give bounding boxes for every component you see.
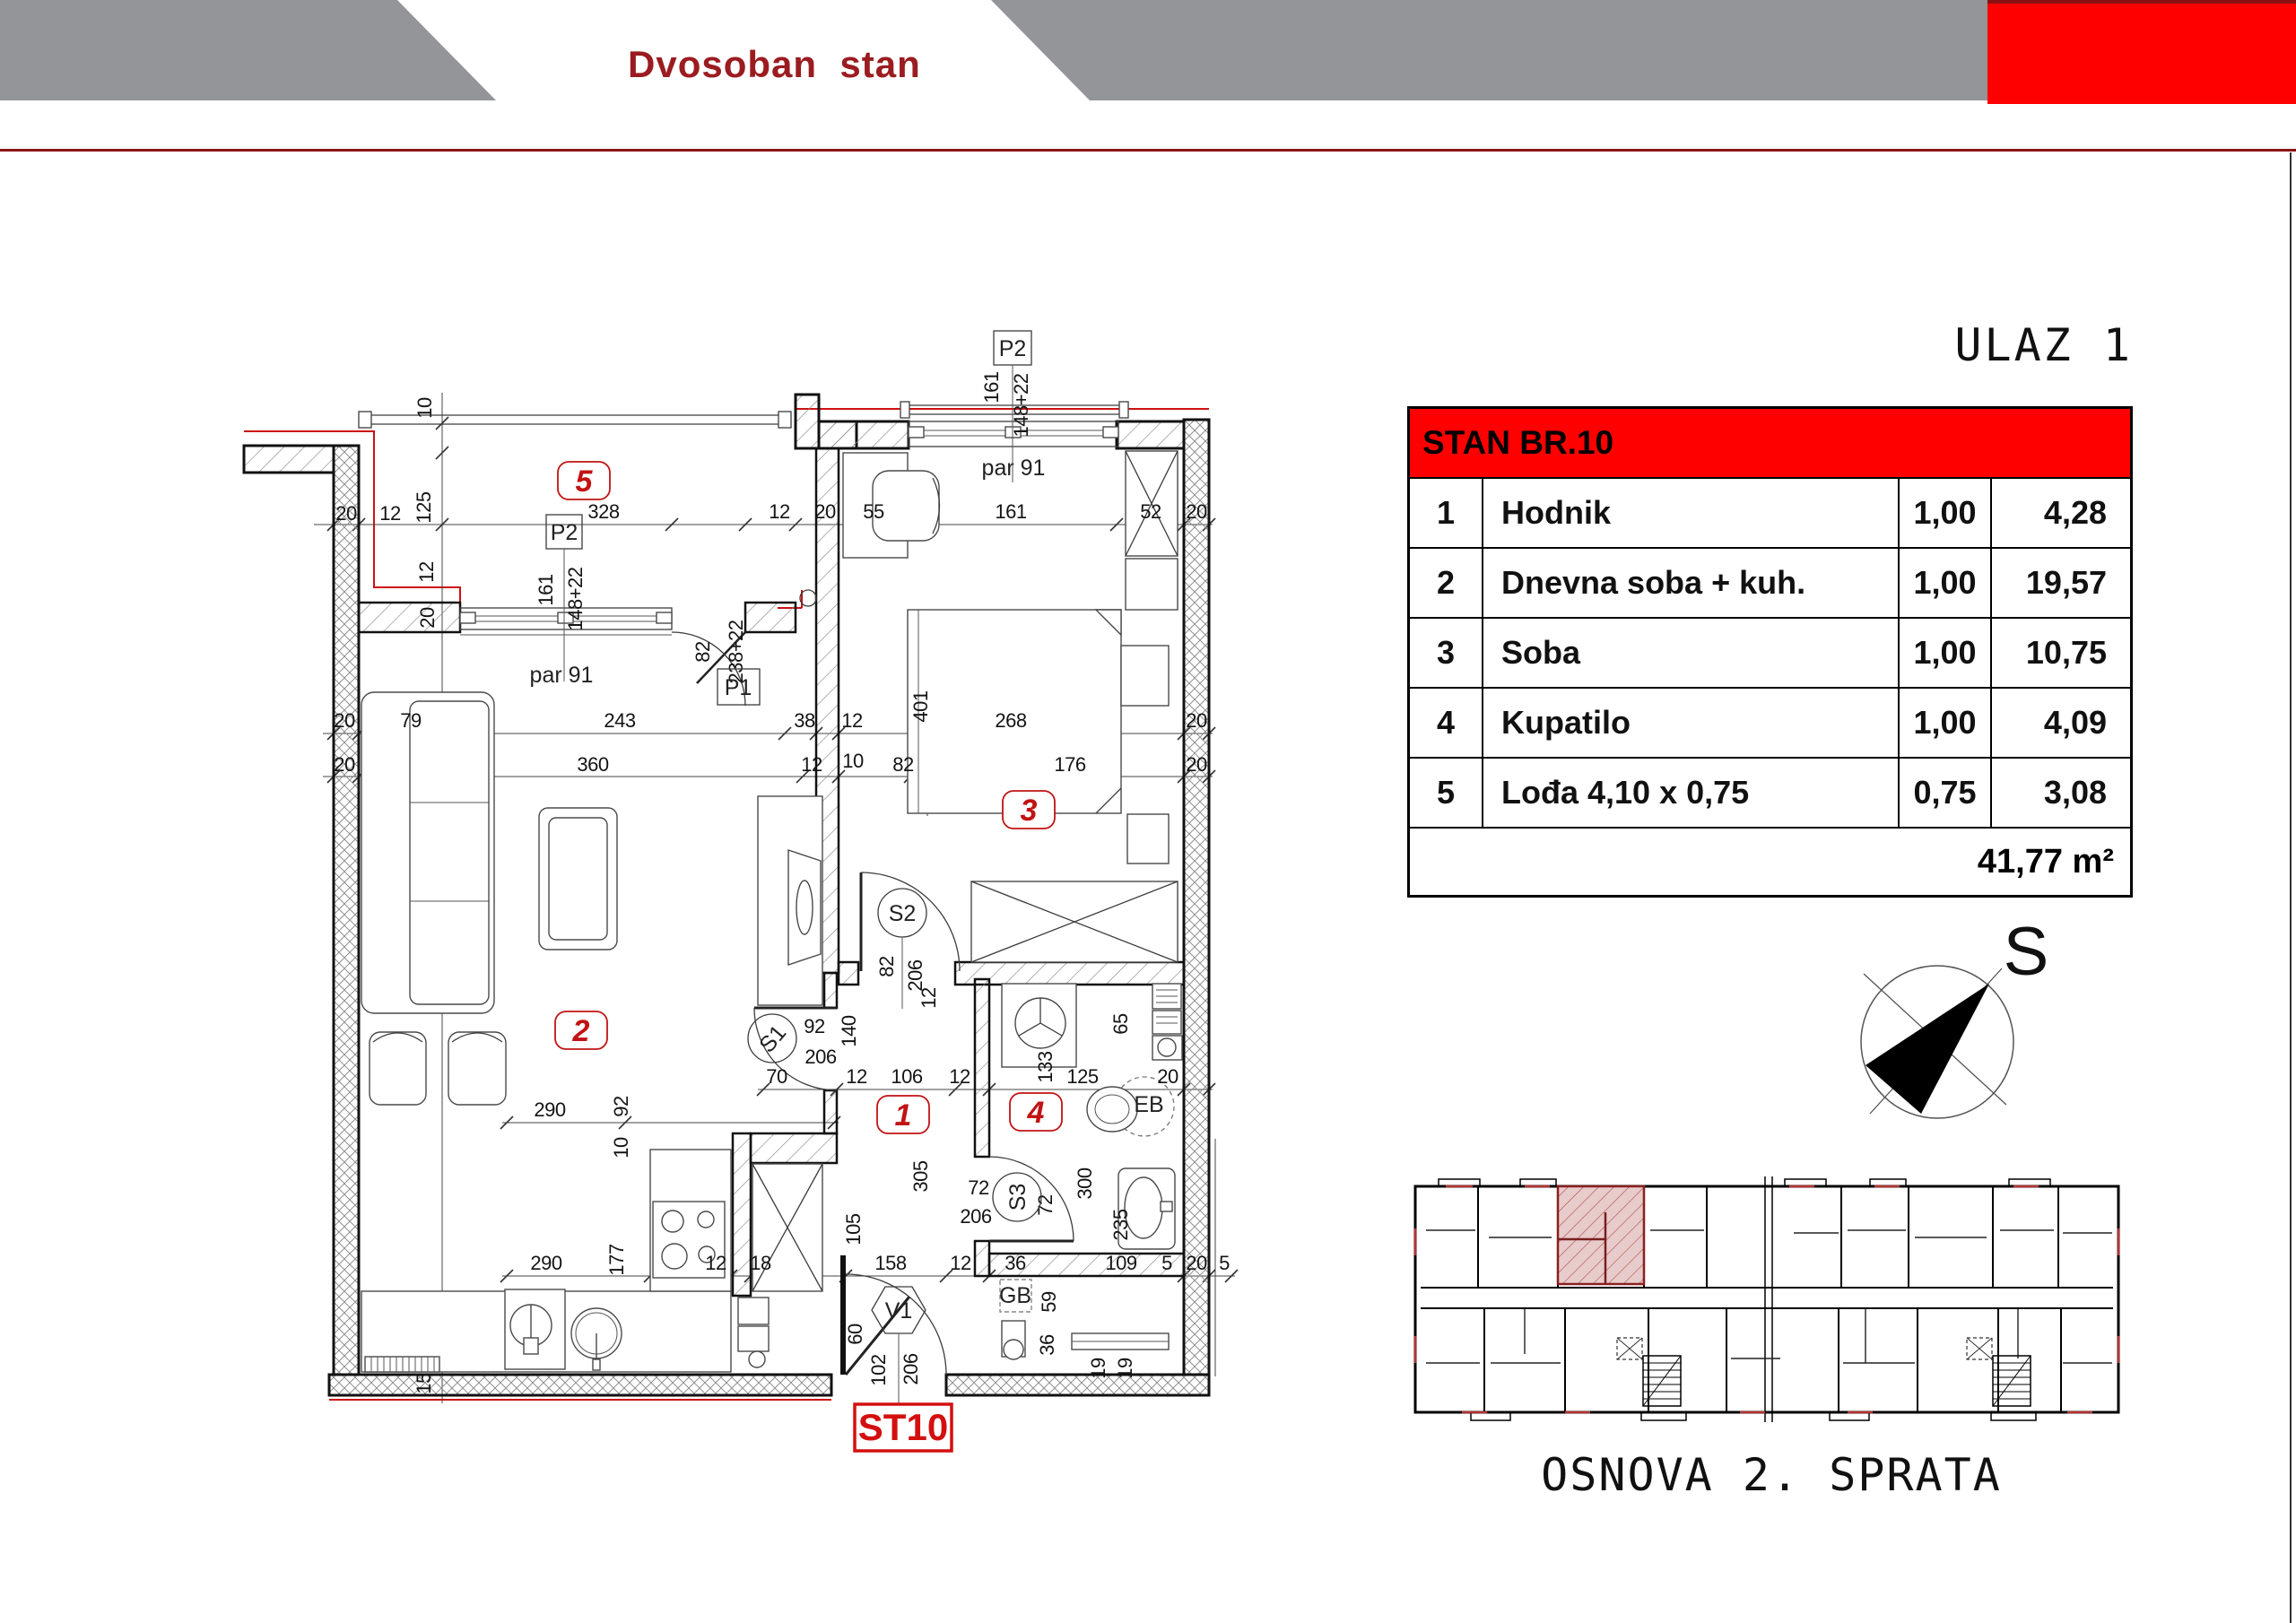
dim-text: 12: [379, 502, 401, 525]
dim-text: 125: [1066, 1065, 1098, 1088]
dim-text: 238+22: [725, 620, 747, 683]
dim-text: 20: [335, 502, 357, 525]
dresser: [971, 881, 1178, 962]
entry-door-jamb: [840, 1255, 846, 1375]
overview-window-marks: [1415, 1186, 2118, 1412]
dim-text: 206: [904, 959, 926, 991]
compass-north-label: S: [2004, 914, 2049, 990]
dim-text: 148+22: [564, 567, 587, 630]
eb-label: EB: [1134, 1092, 1163, 1117]
dim-text: 268: [995, 709, 1026, 732]
dim-text: 109: [1105, 1252, 1136, 1274]
dim-text: 290: [534, 1098, 565, 1121]
radiator: [1072, 1333, 1169, 1350]
dim-text: 148+22: [1010, 373, 1032, 437]
dim-text: 161: [980, 371, 1003, 403]
wardrobe: [1126, 451, 1178, 610]
unit-tag-st10: ST10: [855, 1404, 952, 1451]
tv-stand: [758, 796, 822, 1005]
dim-text: 12: [846, 1065, 867, 1088]
dim-text: 19: [1087, 1358, 1109, 1379]
dim-text: 360: [577, 753, 608, 776]
dim-text: 206: [960, 1205, 991, 1228]
svg-text:P2: P2: [999, 336, 1027, 361]
dim-text: 20: [1186, 709, 1207, 732]
apartment-plan: 10 20 12 125 12 20 328 12 20 55 161 52 2…: [244, 331, 1238, 1451]
dim-text: 158: [874, 1252, 906, 1274]
dim-text: 12: [801, 753, 822, 776]
nightstand: [1121, 646, 1169, 706]
dim-text: 12: [841, 709, 863, 732]
dining-table: [539, 808, 617, 950]
dim-text: 20: [1186, 1252, 1207, 1274]
toilet: [1087, 1087, 1137, 1132]
dim-text: 401: [909, 690, 932, 722]
svg-text:4: 4: [1027, 1096, 1045, 1130]
room-label-1: 1: [877, 1096, 929, 1133]
svg-text:S1: S1: [754, 1020, 791, 1057]
dim-text: 72: [968, 1176, 989, 1199]
dim-text: 12: [918, 987, 940, 1009]
room-label-2: 2: [555, 1011, 607, 1049]
compass-needle: [1865, 984, 1989, 1114]
svg-text:1: 1: [895, 1098, 912, 1133]
dim-text: 12: [769, 500, 790, 523]
dim-text: 235: [1109, 1209, 1132, 1240]
svg-text:2: 2: [572, 1014, 590, 1048]
dim-text: 20: [814, 500, 836, 523]
svg-text:5: 5: [576, 464, 594, 499]
dim-text: 125: [413, 491, 435, 523]
parapet-label: par 91: [982, 456, 1046, 481]
sofa: [361, 692, 494, 1013]
dim-text: 59: [1038, 1291, 1060, 1313]
dim-text: 133: [1034, 1051, 1057, 1082]
dim-text: 161: [995, 500, 1026, 523]
dim-text: 92: [804, 1015, 825, 1037]
svg-text:P2: P2: [551, 520, 578, 545]
svg-text:3: 3: [1021, 794, 1038, 828]
dim-text: 92: [610, 1096, 632, 1117]
svg-text:P1: P1: [725, 675, 752, 700]
vent-shaft: [1152, 984, 1181, 1034]
dim-text: 82: [892, 753, 914, 776]
dim-text: 82: [691, 641, 714, 663]
dim-text: 20: [334, 753, 355, 776]
dim-text: 20: [1157, 1065, 1178, 1088]
dim-text: 10: [413, 397, 436, 419]
dim-text: 55: [863, 500, 884, 523]
dim-text: 5: [1161, 1252, 1172, 1274]
dim-text: 20: [334, 709, 355, 732]
svg-text:V1: V1: [885, 1298, 913, 1324]
dim-text: 161: [535, 574, 557, 605]
dim-text: 328: [587, 500, 619, 523]
floor-plan-drawing: 10 20 12 125 12 20 328 12 20 55 161 52 2…: [0, 0, 2296, 1623]
room-label-3: 3: [1003, 791, 1055, 829]
dim-text: 12: [950, 1252, 971, 1274]
dim-text: 18: [750, 1252, 771, 1274]
dim-text: 65: [1109, 1013, 1132, 1035]
dim-text: 36: [1004, 1252, 1026, 1274]
dim-text: 12: [949, 1065, 970, 1088]
dim-text: 177: [605, 1244, 628, 1275]
dim-text: 52: [1140, 500, 1161, 523]
parapet-label: par 91: [530, 663, 594, 688]
stool: [448, 1032, 506, 1105]
nightstand: [1127, 814, 1169, 864]
dim-text: 300: [1074, 1167, 1096, 1199]
bath-door-s3: [989, 1157, 1074, 1241]
dim-text: 12: [415, 561, 438, 583]
dim-text: 72: [1034, 1194, 1057, 1216]
compass: S: [1861, 914, 2048, 1118]
dim-text: 206: [900, 1353, 922, 1384]
svg-text:S3: S3: [1005, 1184, 1031, 1211]
highlighted-unit: [1558, 1186, 1644, 1284]
room-label-4: 4: [1010, 1093, 1062, 1131]
dim-text: 140: [838, 1015, 860, 1046]
dim-text: 206: [804, 1046, 836, 1068]
dim-text: 36: [1036, 1334, 1058, 1356]
dim-text: 19: [1114, 1358, 1136, 1379]
dim-text: 70: [766, 1065, 787, 1088]
dim-text: 102: [867, 1354, 890, 1385]
dim-text: 5: [1219, 1252, 1230, 1274]
gb-label: GB: [999, 1283, 1031, 1308]
dim-text: 243: [604, 709, 635, 732]
dim-text: 105: [842, 1213, 865, 1245]
dim-text: 79: [400, 709, 422, 732]
room-label-5: 5: [558, 462, 610, 499]
dim-text: 176: [1054, 753, 1085, 776]
dim-text: 10: [842, 750, 864, 772]
door-label-s1: S1: [748, 1014, 796, 1063]
dim-text: 305: [909, 1160, 932, 1192]
dim-text: 106: [891, 1065, 922, 1088]
dim-text: 12: [705, 1252, 726, 1274]
dim-text: 290: [530, 1252, 561, 1274]
dim-text: 15: [413, 1373, 435, 1394]
dim-text: 20: [1186, 500, 1207, 523]
dim-text: 82: [875, 956, 898, 977]
dim-text: 60: [844, 1324, 866, 1345]
dim-text: 38: [794, 709, 815, 732]
dim-text: 10: [610, 1137, 632, 1159]
svg-text:S2: S2: [889, 901, 917, 926]
stool: [370, 1032, 426, 1105]
svg-text:ST10: ST10: [858, 1406, 948, 1448]
building-overview: [1415, 1176, 2118, 1422]
dim-text: 20: [1186, 753, 1207, 776]
dim-text: 20: [416, 607, 439, 629]
